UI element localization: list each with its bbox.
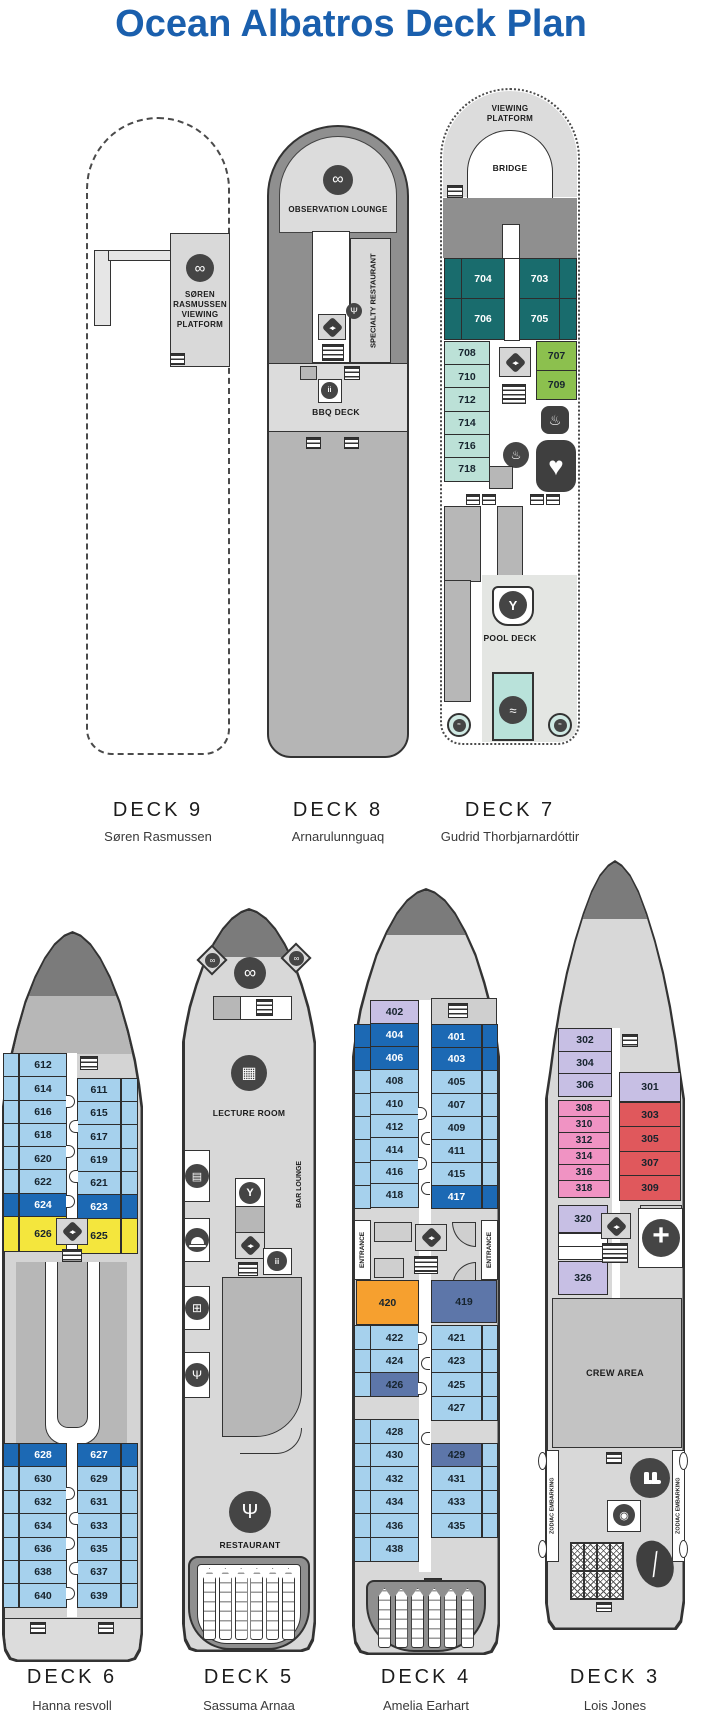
cabin-door bbox=[69, 1120, 78, 1133]
cabin: 615 bbox=[77, 1101, 121, 1126]
cabin: 410 bbox=[370, 1092, 419, 1116]
window-strip bbox=[482, 1396, 498, 1421]
window-strip bbox=[354, 1537, 371, 1562]
zodiac-boat bbox=[219, 1568, 232, 1640]
zodiac-boat bbox=[203, 1568, 216, 1640]
window-strip bbox=[354, 1139, 371, 1163]
waves-icon: ≈ bbox=[554, 719, 567, 732]
cabin: 403 bbox=[431, 1047, 482, 1071]
cabin: 416 bbox=[370, 1160, 419, 1184]
cabin: 406 bbox=[370, 1046, 419, 1070]
stairs-icon bbox=[502, 384, 526, 404]
cabin: 633 bbox=[77, 1513, 121, 1538]
cocktail-icon: Y bbox=[239, 1182, 261, 1204]
cabin: 707 bbox=[536, 341, 577, 371]
window-strip bbox=[3, 1100, 19, 1125]
deck7-person: Gudrid Thorbjarnardóttir bbox=[441, 829, 580, 844]
cabin: 617 bbox=[77, 1124, 121, 1149]
cabin: 435 bbox=[431, 1513, 482, 1538]
binoculars-icon: ∞ bbox=[186, 254, 214, 282]
deck7-viewing-label: VIEWING PLATFORM bbox=[470, 104, 550, 124]
deck5-galley-block bbox=[222, 1277, 302, 1437]
cabin: 402 bbox=[370, 1000, 419, 1024]
window-strip bbox=[354, 1372, 371, 1397]
deck4-strip-right-lower bbox=[482, 1325, 498, 1562]
window-strip bbox=[121, 1171, 138, 1196]
boot-rack-cell bbox=[610, 1543, 623, 1571]
deck7-deckhouse bbox=[497, 506, 523, 576]
whirlpool-icon: ◉ bbox=[613, 1504, 635, 1526]
window-strip bbox=[354, 1116, 371, 1140]
deck3-bow-cap bbox=[548, 863, 683, 919]
lecture-icon: ▦ bbox=[231, 1055, 267, 1091]
cabin: 427 bbox=[431, 1396, 482, 1421]
stairs-icon bbox=[238, 1262, 258, 1276]
cutlery-icon: Ψ bbox=[185, 1363, 209, 1387]
cabin: 612 bbox=[19, 1053, 67, 1078]
window-strip bbox=[482, 1070, 498, 1094]
deck6-midship-pillar bbox=[57, 1262, 88, 1428]
window-strip bbox=[121, 1583, 138, 1608]
deck4-strip-right-upper bbox=[482, 1024, 498, 1209]
deck7-suite-strip-left bbox=[444, 258, 462, 340]
zodiac-boat bbox=[411, 1588, 424, 1648]
cabin: 326 bbox=[558, 1261, 608, 1295]
deck4-entrance-right-label: ENTRANCE bbox=[482, 1221, 497, 1279]
deck4-corridor bbox=[419, 1000, 431, 1572]
deck8-bbq-label: BBQ DECK bbox=[301, 407, 371, 418]
cabin: 616 bbox=[19, 1100, 67, 1125]
window-strip bbox=[3, 1490, 19, 1515]
window-strip bbox=[354, 1093, 371, 1117]
window-strip bbox=[482, 1372, 498, 1397]
deck7-structure bbox=[489, 466, 513, 489]
window-strip bbox=[3, 1583, 19, 1608]
deck4-zodiacs bbox=[378, 1588, 474, 1646]
pool-ladder-icon: ≈ bbox=[499, 696, 527, 724]
boot-rack-cell bbox=[597, 1571, 610, 1599]
spa-icon: ♨ bbox=[503, 442, 529, 468]
cabin: 405 bbox=[431, 1070, 482, 1094]
cabin: 425 bbox=[431, 1372, 482, 1397]
deck3-cabins-red-right: 303305307309 bbox=[619, 1102, 681, 1201]
deck4-label: DECK 4 bbox=[381, 1666, 471, 1689]
deck4-cabins-left-lower: 422424426428430432434436438 bbox=[370, 1325, 419, 1562]
deck6-strip-left-upper bbox=[3, 1053, 19, 1252]
elevator-icon: ◂▸ bbox=[56, 1218, 88, 1245]
deck4-entrance-left-label: ENTRANCE bbox=[355, 1221, 370, 1279]
cabin: 709 bbox=[536, 370, 577, 400]
window-strip bbox=[482, 1185, 498, 1209]
window-strip bbox=[482, 1419, 498, 1444]
window-strip bbox=[121, 1078, 138, 1103]
cabin: 716 bbox=[444, 434, 490, 459]
window-strip bbox=[482, 1443, 498, 1468]
cabin: 704 bbox=[461, 258, 505, 300]
deck5-structure bbox=[235, 1206, 265, 1233]
deck7-pool-label: POOL DECK bbox=[480, 633, 540, 644]
deck4-person: Amelia Earhart bbox=[383, 1698, 469, 1713]
window-strip bbox=[482, 1537, 498, 1562]
cabin: 429 bbox=[431, 1443, 482, 1468]
page-title: Ocean Albatros Deck Plan bbox=[0, 3, 702, 46]
cabin: 303 bbox=[619, 1102, 681, 1128]
cabin: 619 bbox=[77, 1148, 121, 1173]
zodiac-boat bbox=[282, 1568, 295, 1640]
cabin: 409 bbox=[431, 1116, 482, 1140]
boot-rack-cell bbox=[571, 1543, 584, 1571]
zodiac-fender bbox=[679, 1452, 688, 1470]
deck5-bar-label: BAR LOUNGE bbox=[288, 1152, 312, 1216]
deck6-cabins-left-lower: 628630632634636638640 bbox=[19, 1443, 67, 1608]
deck6-strip-left-lower bbox=[3, 1443, 19, 1608]
deck3-crew-label: CREW AREA bbox=[575, 1368, 655, 1379]
cabin: 628 bbox=[19, 1443, 67, 1468]
window-strip bbox=[354, 1162, 371, 1186]
zodiac-boat bbox=[444, 1588, 457, 1648]
deck7-label: DECK 7 bbox=[465, 799, 555, 822]
window-strip bbox=[482, 1116, 498, 1140]
binoculars-icon: ∞ bbox=[289, 951, 304, 966]
deck9-label: DECK 9 bbox=[113, 799, 203, 822]
cabin: 438 bbox=[370, 1537, 419, 1562]
deck4-cabins-right-upper: 401403405407409411415417 bbox=[431, 1024, 482, 1209]
gift-shop-icon: ⊞ bbox=[185, 1296, 209, 1320]
window-strip bbox=[121, 1490, 138, 1515]
cabin: 411 bbox=[431, 1139, 482, 1163]
zodiac-boat bbox=[235, 1568, 248, 1640]
window-strip bbox=[3, 1537, 19, 1562]
window-strip bbox=[121, 1124, 138, 1149]
deck9-platform-label: SØREN RASMUSSEN VIEWING PLATFORM bbox=[171, 290, 229, 330]
deck8-lower-deck bbox=[269, 432, 407, 756]
cabin: 703 bbox=[519, 258, 560, 300]
cabin: 714 bbox=[444, 411, 490, 436]
cabin: 407 bbox=[431, 1093, 482, 1117]
deck7-suite-strip-right bbox=[559, 258, 577, 340]
cabin: 404 bbox=[370, 1023, 419, 1047]
wc-icon: ii bbox=[321, 382, 338, 399]
window-strip bbox=[354, 1419, 371, 1444]
window-strip bbox=[354, 1047, 371, 1071]
cabin: 708 bbox=[444, 341, 490, 366]
window-strip bbox=[121, 1466, 138, 1491]
cabin: 627 bbox=[77, 1443, 121, 1468]
window-strip bbox=[3, 1123, 19, 1148]
boot-rack-cell bbox=[584, 1571, 597, 1599]
elevator-icon: ◂▸ bbox=[499, 347, 531, 377]
steam-room-icon: ♨ bbox=[541, 406, 569, 434]
cabin: 632 bbox=[19, 1490, 67, 1515]
window-strip bbox=[354, 1185, 371, 1209]
fitness-heart-icon: ♥ bbox=[536, 440, 576, 492]
deck4-strip-left-upper bbox=[354, 1024, 371, 1209]
hot-tub: ≈ bbox=[548, 713, 572, 737]
cabin bbox=[431, 1537, 482, 1562]
cabin: 421 bbox=[431, 1325, 482, 1350]
stairs-icon bbox=[256, 999, 273, 1016]
cabin: 306 bbox=[558, 1073, 612, 1097]
window-strip bbox=[121, 1101, 138, 1126]
stairs-icon bbox=[482, 494, 496, 505]
cabin: 631 bbox=[77, 1490, 121, 1515]
cabin: 629 bbox=[77, 1466, 121, 1491]
stairs-icon bbox=[30, 1622, 46, 1634]
deck6-bow-mid bbox=[5, 996, 141, 1054]
deck4-cabins-left-upper: 402404406408410412414416418 bbox=[370, 1000, 419, 1208]
deck5-lecture-label: LECTURE ROOM bbox=[204, 1108, 294, 1119]
deck7-deckhouse bbox=[444, 506, 481, 582]
stairs-icon bbox=[414, 1256, 438, 1274]
boot-rack-cell bbox=[584, 1543, 597, 1571]
zodiac-fender bbox=[538, 1540, 547, 1558]
window-strip bbox=[3, 1443, 19, 1468]
stairs-icon bbox=[606, 1452, 622, 1464]
deck9-catwalk-vertical bbox=[94, 250, 111, 326]
deck4-cabins-right-lower: 421423425427429431433435 bbox=[431, 1325, 482, 1562]
deck4-structure bbox=[374, 1258, 404, 1278]
stairs-icon bbox=[622, 1034, 638, 1047]
deck7-cabins-left: 708710712714716718 bbox=[444, 341, 490, 482]
cabin: 304 bbox=[558, 1051, 612, 1075]
window-strip bbox=[121, 1443, 138, 1468]
deck6-stern-deck bbox=[5, 1618, 141, 1663]
cabin-door bbox=[421, 1182, 430, 1195]
cabin: 422 bbox=[370, 1325, 419, 1350]
deck4-bow-cap bbox=[355, 891, 498, 935]
wc-icon: ii bbox=[267, 1251, 287, 1271]
deck3-person: Lois Jones bbox=[584, 1698, 646, 1713]
waves-icon: ≈ bbox=[453, 719, 466, 732]
elevator-icon: ◂▸ bbox=[601, 1213, 631, 1239]
window-strip bbox=[354, 1349, 371, 1374]
cabin: 310 bbox=[558, 1116, 610, 1134]
stairs-icon bbox=[62, 1249, 82, 1262]
stairs-icon bbox=[530, 494, 544, 505]
cabin-door bbox=[421, 1132, 430, 1145]
window-strip bbox=[354, 1443, 371, 1468]
window-strip bbox=[3, 1216, 19, 1252]
deck4-strip-left-lower bbox=[354, 1325, 371, 1562]
deck8-label: DECK 8 bbox=[293, 799, 383, 822]
cabin: 636 bbox=[19, 1537, 67, 1562]
cabin bbox=[370, 1396, 419, 1421]
cabin: 434 bbox=[370, 1490, 419, 1515]
stairs-icon bbox=[447, 185, 463, 198]
cabin bbox=[431, 1419, 482, 1444]
cabin: 420 bbox=[356, 1280, 419, 1325]
cabin: 611 bbox=[77, 1078, 121, 1103]
boot-rack-cell bbox=[610, 1571, 623, 1599]
cabin: 414 bbox=[370, 1137, 419, 1161]
zodiac-boat bbox=[461, 1588, 474, 1648]
window-strip bbox=[444, 298, 462, 340]
deck5-structure bbox=[213, 996, 241, 1020]
deck6-strip-right-upper bbox=[121, 1078, 138, 1254]
deck5-label: DECK 5 bbox=[204, 1666, 294, 1689]
restaurant-icon: Ψ bbox=[229, 1491, 271, 1533]
window-strip bbox=[482, 1325, 498, 1350]
deck5-person: Sassuma Arnaa bbox=[203, 1698, 295, 1713]
deck9-hull-outline bbox=[86, 117, 230, 755]
deck6-strip-right-lower bbox=[121, 1443, 138, 1608]
boots-icon bbox=[630, 1458, 670, 1498]
stairs-icon bbox=[602, 1243, 628, 1263]
cabin: 418 bbox=[370, 1183, 419, 1207]
cocktail-icon: Y bbox=[499, 591, 527, 619]
boot-rack bbox=[570, 1542, 624, 1600]
cabin: 419 bbox=[431, 1280, 497, 1323]
cabin: 401 bbox=[431, 1024, 482, 1048]
window-strip bbox=[3, 1053, 19, 1078]
deck5-zodiacs bbox=[203, 1568, 295, 1638]
cabin: 710 bbox=[444, 364, 490, 389]
window-strip bbox=[121, 1560, 138, 1585]
cabin: 635 bbox=[77, 1537, 121, 1562]
cabin: 637 bbox=[77, 1560, 121, 1585]
medical-cross-icon: + bbox=[642, 1219, 680, 1257]
cabin: 312 bbox=[558, 1132, 610, 1150]
cabin: 622 bbox=[19, 1169, 67, 1194]
stairs-icon bbox=[322, 344, 344, 361]
deck6-cabins-right-lower: 627629631633635637639 bbox=[77, 1443, 121, 1608]
cabin: 634 bbox=[19, 1513, 67, 1538]
zodiac-boat bbox=[428, 1588, 441, 1648]
zodiac-boat bbox=[395, 1588, 408, 1648]
cabin: 640 bbox=[19, 1583, 67, 1608]
cabin: 302 bbox=[558, 1028, 612, 1052]
cabin: 436 bbox=[370, 1513, 419, 1538]
cabin: 433 bbox=[431, 1490, 482, 1515]
window-strip bbox=[354, 1466, 371, 1491]
window-strip bbox=[121, 1148, 138, 1173]
zodiac-boat bbox=[266, 1568, 279, 1640]
deck7-suites-right: 703705 bbox=[519, 258, 560, 340]
window-strip bbox=[482, 1047, 498, 1071]
cabin: 424 bbox=[370, 1349, 419, 1374]
hot-tub: ≈ bbox=[447, 713, 471, 737]
deck8-specialty-label: SPECIALTY RESTAURANT bbox=[360, 245, 386, 357]
binoculars-icon: ∞ bbox=[323, 165, 353, 195]
cabin: 630 bbox=[19, 1466, 67, 1491]
stairs-icon bbox=[596, 1602, 612, 1612]
stairs-icon bbox=[306, 437, 321, 449]
deck3-cabins-lavender-left: 302304306 bbox=[558, 1028, 612, 1097]
deck8-structure bbox=[300, 366, 317, 380]
window-strip bbox=[121, 1194, 138, 1219]
window-strip bbox=[482, 1139, 498, 1163]
cabin: 309 bbox=[619, 1175, 681, 1201]
stairs-icon bbox=[80, 1056, 98, 1070]
elevator-icon: ◂▸ bbox=[318, 314, 346, 340]
cabin: 316 bbox=[558, 1164, 610, 1182]
cabin: 415 bbox=[431, 1162, 482, 1186]
stairs-icon bbox=[98, 1622, 114, 1634]
window-strip bbox=[354, 1513, 371, 1538]
cabin-door bbox=[421, 1432, 430, 1445]
cabin-door bbox=[421, 1357, 430, 1370]
deck5-restaurant-label: RESTAURANT bbox=[205, 1540, 295, 1551]
cabin: 430 bbox=[370, 1443, 419, 1468]
cabin: 318 bbox=[558, 1180, 610, 1198]
cabin: 423 bbox=[431, 1349, 482, 1374]
deck6-label: DECK 6 bbox=[27, 1666, 117, 1689]
deck3-cabins-pink-left: 308310312314316318 bbox=[558, 1100, 610, 1198]
cabin: 308 bbox=[558, 1100, 610, 1118]
cabin: 705 bbox=[519, 298, 560, 340]
restaurant-icon: Ψ bbox=[346, 303, 362, 319]
window-strip bbox=[444, 258, 462, 300]
window-strip bbox=[482, 1490, 498, 1515]
cabin: 706 bbox=[461, 298, 505, 340]
stairs-icon bbox=[448, 1003, 468, 1018]
cabin: 426 bbox=[370, 1372, 419, 1397]
service-room bbox=[558, 1246, 608, 1260]
cabin: 614 bbox=[19, 1076, 67, 1101]
deck7-suites-left: 704706 bbox=[461, 258, 505, 340]
stairs-icon bbox=[466, 494, 480, 505]
deck4-structure bbox=[374, 1222, 412, 1242]
deck8-person: Arnarulunnguaq bbox=[292, 829, 385, 844]
window-strip bbox=[3, 1146, 19, 1171]
window-strip bbox=[3, 1513, 19, 1538]
window-strip bbox=[354, 1396, 371, 1421]
cabin: 639 bbox=[77, 1583, 121, 1608]
stairs-icon bbox=[344, 437, 359, 449]
cabin: 417 bbox=[431, 1185, 482, 1209]
window-strip bbox=[354, 1024, 371, 1048]
stairs-icon bbox=[546, 494, 560, 505]
cabin: 314 bbox=[558, 1148, 610, 1166]
window-strip bbox=[3, 1560, 19, 1585]
deck9-person: Søren Rasmussen bbox=[104, 829, 212, 844]
cabin: 718 bbox=[444, 457, 490, 482]
deck7-deckhouse bbox=[444, 580, 471, 702]
elevator-icon: ◂▸ bbox=[235, 1232, 265, 1259]
cabin: 408 bbox=[370, 1069, 419, 1093]
library-icon: ▤ bbox=[185, 1164, 209, 1188]
boot-rack-cell bbox=[597, 1543, 610, 1571]
zodiac-fender bbox=[538, 1452, 547, 1470]
cabin-door bbox=[69, 1562, 78, 1575]
window-strip bbox=[121, 1537, 138, 1562]
cabin: 431 bbox=[431, 1466, 482, 1491]
deck7-bridge-label: BRIDGE bbox=[480, 163, 540, 174]
deck7-suite-corridor bbox=[504, 258, 520, 341]
binoculars-icon: ∞ bbox=[205, 953, 220, 968]
window-strip bbox=[354, 1325, 371, 1350]
cabin: 638 bbox=[19, 1560, 67, 1585]
cabin: 432 bbox=[370, 1466, 419, 1491]
window-strip bbox=[354, 1490, 371, 1515]
deck7-cabins-right: 707709 bbox=[536, 341, 577, 400]
elevator-icon: ◂▸ bbox=[415, 1224, 447, 1251]
cabin: 623 bbox=[77, 1194, 121, 1219]
window-strip bbox=[121, 1513, 138, 1538]
window-strip bbox=[482, 1024, 498, 1048]
cabin: 618 bbox=[19, 1123, 67, 1148]
cabin: 712 bbox=[444, 387, 490, 412]
deck9-catwalk-horizontal bbox=[108, 250, 172, 261]
window-strip bbox=[3, 1076, 19, 1101]
window-strip bbox=[559, 298, 577, 340]
cloche-icon bbox=[185, 1228, 209, 1252]
cabin: 621 bbox=[77, 1171, 121, 1196]
window-strip bbox=[482, 1349, 498, 1374]
cabin: 412 bbox=[370, 1114, 419, 1138]
window-strip bbox=[3, 1169, 19, 1194]
zodiac-boat bbox=[250, 1568, 263, 1640]
